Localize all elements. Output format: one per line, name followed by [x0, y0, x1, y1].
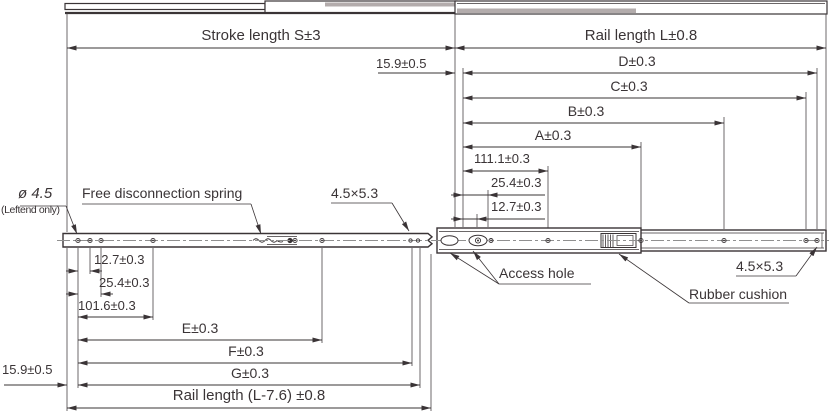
dim-rail-length-bottom-label: Rail length (L-7.6) ±0.8: [173, 388, 325, 404]
dim-c-label: C±0.3: [610, 79, 647, 94]
callout-leftend-note: (Leftend only): [1, 205, 60, 216]
dim-g-label: G±0.3: [231, 366, 269, 381]
dim-d-label: D±0.3: [618, 54, 655, 69]
dim-127-bottom-label: 12.7±0.3: [94, 253, 145, 267]
dim-f-label: F±0.3: [228, 344, 264, 359]
leader-spring: [82, 204, 261, 234]
callout-slot-mid: 4.5×5.3: [331, 186, 378, 201]
dim-stroke-length-label: Stroke length S±3: [201, 28, 320, 44]
dim-1016-label: 101.6±0.3: [78, 299, 136, 313]
callout-spring: Free disconnection spring: [82, 186, 242, 201]
technical-drawing: Stroke length S±3 Rail length L±0.8 15.9…: [0, 0, 831, 413]
dim-rail-length-top-label: Rail length L±0.8: [585, 28, 697, 44]
dim-127-top-label: 12.7±0.3: [491, 200, 542, 214]
dim-offset-bottom-label: 15.9±0.5: [2, 363, 53, 377]
dim-254-top-label: 25.4±0.3: [491, 176, 542, 190]
rail-side-view: [57, 228, 829, 253]
dim-e-label: E±0.3: [182, 321, 218, 336]
callout-rubber-cushion: Rubber cushion: [689, 287, 787, 302]
top-assembly-view: [65, 1, 827, 14]
dim-a-label: A±0.3: [535, 128, 571, 143]
dim-254-bottom-label: 25.4±0.3: [99, 276, 150, 290]
dimension-lines: [4, 48, 826, 408]
dim-offset-top-label: 15.9±0.5: [376, 57, 427, 71]
dim-b-label: B±0.3: [568, 104, 604, 119]
leader-slot-mid: [331, 203, 409, 231]
callout-hole-diameter: ø 4.5: [18, 186, 52, 202]
dim-111-label: 111.1±0.3: [474, 152, 530, 166]
callout-access-hole: Access hole: [499, 266, 574, 281]
callout-slot-right: 4.5×5.3: [736, 259, 783, 274]
